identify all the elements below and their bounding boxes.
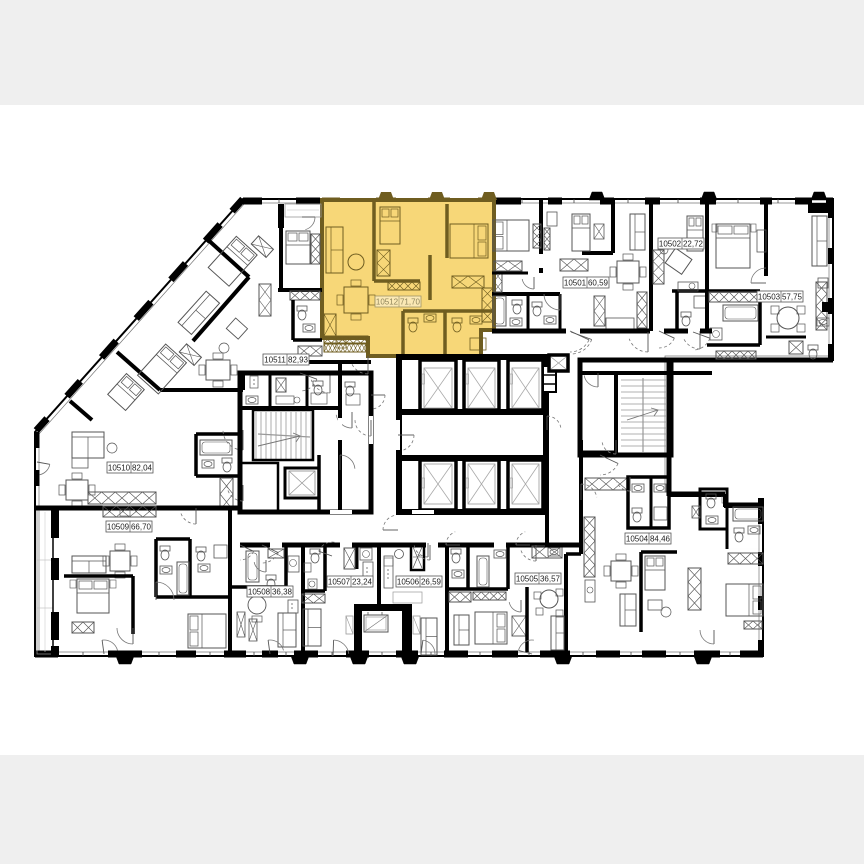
svg-text:66,70: 66,70 xyxy=(131,523,152,532)
svg-text:10505: 10505 xyxy=(516,575,539,584)
svg-text:10512: 10512 xyxy=(376,298,399,307)
svg-text:36,57: 36,57 xyxy=(540,575,561,584)
svg-text:71,70: 71,70 xyxy=(400,298,421,307)
svg-text:10501: 10501 xyxy=(564,279,587,288)
svg-text:10506: 10506 xyxy=(397,578,420,587)
svg-text:23,24: 23,24 xyxy=(352,578,373,587)
svg-text:57,75: 57,75 xyxy=(782,293,803,302)
svg-text:82,93: 82,93 xyxy=(288,356,309,365)
svg-text:10510: 10510 xyxy=(108,464,131,473)
svg-text:60,59: 60,59 xyxy=(588,279,609,288)
svg-text:10503: 10503 xyxy=(758,293,781,302)
svg-text:82,04: 82,04 xyxy=(132,464,153,473)
svg-text:10507: 10507 xyxy=(328,578,351,587)
svg-text:10509: 10509 xyxy=(107,523,130,532)
svg-text:22,72: 22,72 xyxy=(683,240,704,249)
svg-text:10504: 10504 xyxy=(626,535,649,544)
svg-text:84,46: 84,46 xyxy=(650,535,671,544)
svg-text:10508: 10508 xyxy=(248,588,271,597)
svg-text:36,38: 36,38 xyxy=(272,588,293,597)
svg-text:10502: 10502 xyxy=(659,240,682,249)
svg-text:26,59: 26,59 xyxy=(421,578,442,587)
svg-text:10511: 10511 xyxy=(264,356,286,365)
